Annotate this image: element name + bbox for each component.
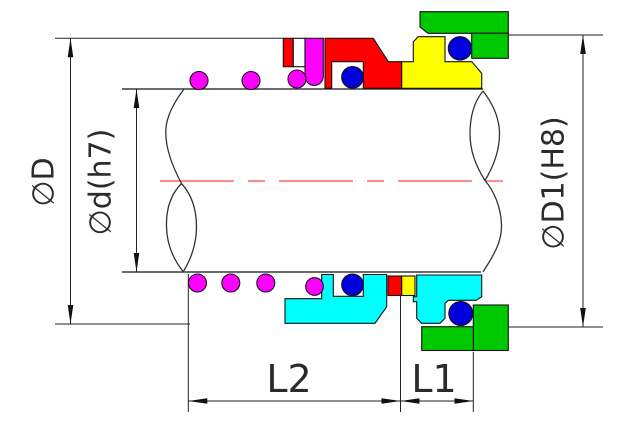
spring-coil	[190, 72, 208, 90]
spring-coil	[306, 278, 324, 296]
label-length-l1: L1	[411, 357, 456, 401]
gland-bottom-outer	[422, 327, 474, 351]
yellow-band-bottom	[402, 276, 415, 296]
gland-bottom-inner	[473, 305, 508, 351]
o-ring-top-middle	[342, 67, 364, 89]
red-band-bottom	[388, 276, 402, 296]
red-collar-band	[283, 38, 293, 66]
o-ring-bottom-right	[449, 302, 473, 326]
spring-coil	[257, 274, 275, 292]
label-length-l2: L2	[266, 357, 311, 401]
label-outer-diameter: ∅D	[27, 157, 62, 206]
o-ring-bottom-middle	[342, 274, 364, 296]
white-band	[293, 38, 305, 66]
spring-coil	[189, 274, 207, 292]
spring-coil	[222, 274, 240, 292]
drive-band-top	[283, 38, 305, 66]
gland-top-outer	[420, 12, 508, 34]
spring-coil	[288, 70, 306, 88]
o-ring-top-right	[448, 37, 471, 60]
drive-band-bottom	[388, 276, 415, 296]
label-bore-diameter: ∅D1(H8)	[537, 116, 572, 249]
spring-coil	[242, 72, 260, 90]
seal-cross-section-drawing: ∅D ∅d(h7) ∅D1(H8) L2 L1	[0, 0, 625, 432]
label-shaft-diameter: ∅d(h7)	[84, 129, 119, 236]
bellows-top	[305, 38, 323, 85]
gland-top-inner	[472, 33, 509, 58]
